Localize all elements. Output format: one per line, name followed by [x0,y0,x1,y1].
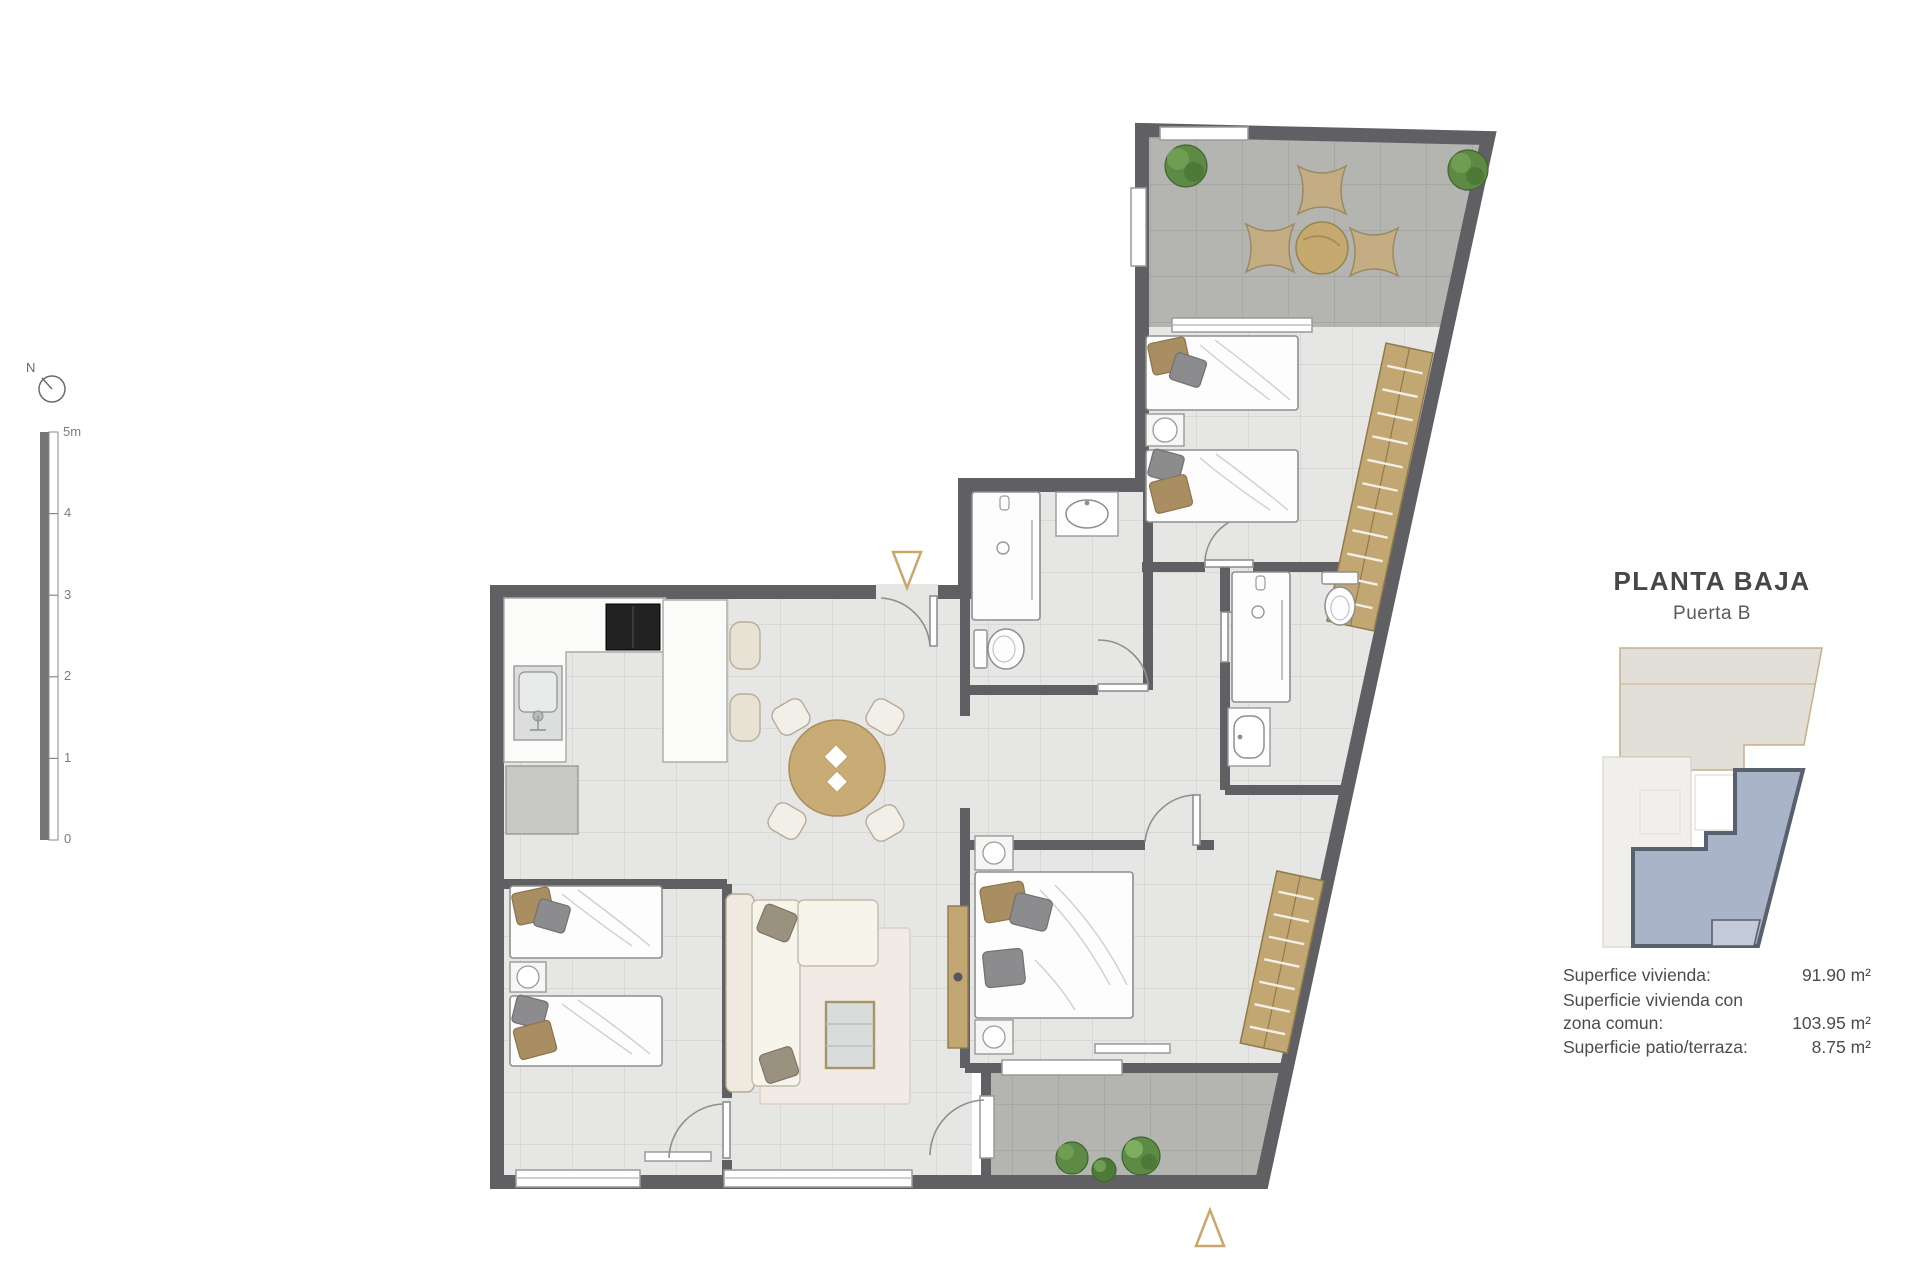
scale-label-3: 3 [64,587,71,602]
minimap-core [1695,775,1735,830]
door-leaf [1205,560,1253,567]
bed-icon [510,995,662,1066]
surface-areas: Superfice vivienda: 91.90 m² Superficie … [1563,964,1871,1061]
plant-icon [1448,150,1488,190]
scale-label-0: 0 [64,831,71,846]
tv-console-icon [948,906,968,1048]
surface-value: 103.95 m² [1792,1012,1871,1035]
surface-label: Superficie patio/terraza: [1563,1036,1748,1059]
scale-label-4: 4 [64,505,71,520]
nightstand-icon [510,962,546,992]
chair-icon [1350,228,1398,276]
minimap [1603,648,1822,947]
minimap-unit-terrace [1712,920,1760,946]
stool-icon [730,694,760,741]
compass-north-label: N [26,360,35,375]
door-leaf [1221,612,1228,662]
chair-icon [1298,166,1346,214]
door-leaf [723,1102,730,1158]
terrace-table [1296,222,1348,274]
bed-icon [1146,336,1298,410]
sink-icon [1056,492,1118,536]
bed-icon [1146,448,1298,522]
surface-label: Superfice vivienda: [1563,964,1711,987]
bed-icon [975,872,1133,1018]
scale-label-2: 2 [64,668,71,683]
sliding-door-leaf [645,1152,711,1161]
plan-title-block: PLANTA BAJA Puerta B [1578,566,1846,625]
entrance-marker-bottom [1196,1210,1224,1246]
window [1002,1060,1122,1075]
coffee-table-icon [826,1002,874,1068]
surface-value: 8.75 m² [1812,1036,1871,1059]
nightstand-icon [1146,414,1184,446]
fridge-icon [506,766,578,834]
toilet-icon [1322,572,1358,625]
sink-icon [1228,708,1270,766]
nightstand-icon [975,1020,1013,1054]
kitchen-island [663,600,727,762]
plant-icon [1165,145,1207,187]
terrace-door [980,1096,994,1158]
floor-plan-page: N 5m 4 3 2 1 0 PLANTA BAJA Puerta B Supe… [0,0,1920,1280]
scale-label-1: 1 [64,750,71,765]
surface-row: Superficie vivienda con zona comun: 103.… [1563,989,1871,1035]
door-leaf [930,596,937,646]
scale-label-5m: 5m [63,424,81,439]
plan-subtitle: Puerta B [1578,603,1846,625]
stool-icon [730,622,760,669]
floor-plan-drawing [0,0,1920,1280]
surface-label: Superficie vivienda con zona comun: [1563,989,1765,1035]
plant-icon [1122,1137,1160,1175]
chair-icon [1246,224,1294,272]
shower-icon [1232,572,1290,702]
shower-icon [972,492,1040,620]
plant-icon [1056,1142,1088,1174]
plan-title: PLANTA BAJA [1578,566,1846,597]
surface-row: Superficie patio/terraza: 8.75 m² [1563,1036,1871,1059]
sliding-door-leaf [1095,1044,1170,1053]
window [1160,127,1248,140]
surface-row: Superfice vivienda: 91.90 m² [1563,964,1871,987]
entrance-marker-top [893,552,921,588]
plant-icon [1092,1158,1116,1182]
nightstand-icon [975,836,1013,870]
bed-icon [510,886,662,958]
kitchen-sink-icon [514,666,562,740]
surface-value: 91.90 m² [1802,964,1871,987]
window [1131,188,1146,266]
minimap-building [1620,648,1822,770]
compass-icon [39,376,65,402]
toilet-icon [974,629,1024,669]
door-leaf [1098,684,1148,691]
scale-bar [40,432,58,840]
door-leaf [1193,795,1200,845]
